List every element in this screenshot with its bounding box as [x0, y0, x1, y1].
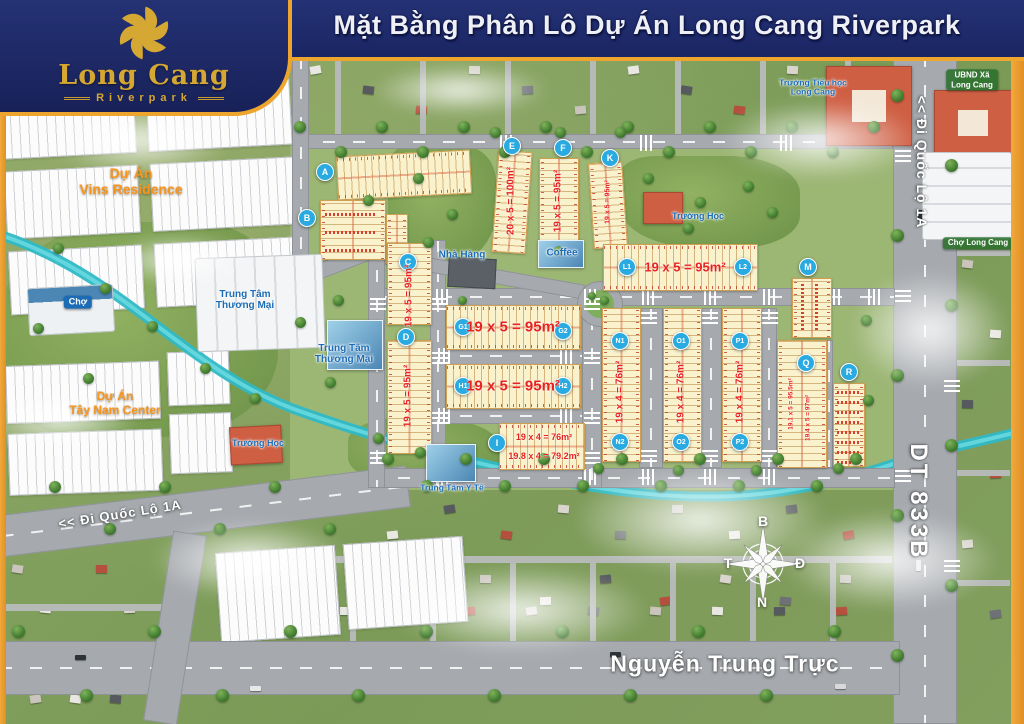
tree-icon — [745, 146, 757, 158]
crosswalk — [895, 290, 911, 302]
tree-icon — [593, 463, 604, 474]
logo-tagline: Riverpark — [64, 92, 224, 104]
tree-icon — [216, 689, 229, 702]
tree-icon — [692, 625, 705, 638]
tree-icon — [376, 121, 388, 133]
tree-icon — [415, 447, 426, 458]
tagline-rule — [64, 97, 90, 100]
compass-east: Đ — [795, 555, 805, 571]
tree-icon — [733, 480, 745, 492]
size-n: 19 x 4 = 76m² — [615, 361, 626, 424]
crosswalk — [704, 469, 716, 485]
label-line: Dự Án — [79, 165, 182, 181]
lot-block-a — [336, 150, 472, 201]
car — [916, 560, 921, 571]
courtyard — [852, 90, 886, 121]
tree-icon — [945, 299, 958, 312]
tree-icon — [868, 121, 880, 133]
crosswalk — [641, 312, 657, 324]
tree-icon — [694, 453, 706, 465]
road-label-dt-833b: DT 833B — [904, 443, 932, 560]
tree-icon — [413, 173, 424, 184]
tree-icon — [325, 377, 336, 388]
label-line: Tây Nam Center — [69, 404, 160, 418]
tree-icon — [53, 243, 64, 254]
tree-icon — [945, 439, 958, 452]
marker-p2: P2 — [731, 433, 749, 451]
crosswalk — [432, 412, 448, 424]
marker-o1: O1 — [672, 332, 690, 350]
tree-icon — [891, 89, 904, 102]
tree-icon — [811, 480, 823, 492]
crosswalk — [763, 289, 775, 305]
label-cho: Chợ — [64, 296, 92, 309]
label-truong-hoc-1: Trường Học — [672, 212, 724, 222]
tree-icon — [695, 197, 706, 208]
tree-icon — [490, 127, 501, 138]
tree-icon — [104, 523, 116, 535]
size-h: 19 x 5 = 95m² — [466, 378, 560, 395]
label-trung-tam-y-te: Trung Tâm Y Tế — [420, 483, 483, 492]
tree-icon — [655, 480, 667, 492]
crosswalk — [560, 348, 572, 364]
car — [835, 684, 846, 689]
crosswalk — [868, 289, 880, 305]
lot-block-m — [792, 278, 832, 338]
size-e: 20 x 5 = 100m² — [506, 167, 517, 235]
label-line: Long Cang — [779, 88, 847, 97]
car — [250, 686, 261, 691]
crosswalk — [944, 380, 960, 392]
size-p: 19 x 4 = 76m² — [735, 361, 746, 424]
marker-b: B — [298, 209, 316, 227]
tree-icon — [458, 296, 467, 305]
tiny-lot-text — [325, 213, 375, 216]
crosswalk — [641, 450, 657, 462]
tree-icon — [616, 453, 628, 465]
tree-icon — [891, 229, 904, 242]
marker-k: K — [601, 149, 619, 167]
marker-n1: N1 — [611, 332, 629, 350]
size-o: 19 x 4 = 76m² — [676, 361, 687, 424]
tree-icon — [200, 363, 211, 374]
courtyard — [958, 110, 988, 136]
tree-icon — [850, 453, 862, 465]
tree-icon — [335, 146, 347, 158]
tree-icon — [743, 181, 754, 192]
tree-icon — [499, 480, 511, 492]
tree-icon — [159, 481, 171, 493]
size-l: 19 x 5 = 95m² — [644, 260, 725, 275]
crosswalk — [895, 150, 911, 162]
marker-o2: O2 — [672, 433, 690, 451]
compass-north: B — [758, 513, 768, 529]
tree-icon — [49, 481, 61, 493]
crosswalk — [702, 312, 718, 324]
compass-south: N — [757, 594, 767, 610]
tree-icon — [827, 146, 839, 158]
tree-icon — [214, 523, 226, 535]
crosswalk — [584, 352, 600, 364]
logo-pinwheel-icon — [113, 2, 175, 64]
tiny-lot-text — [837, 391, 859, 394]
label-coffee: Coffee — [546, 248, 577, 259]
marker-f: F — [554, 139, 572, 157]
tree-icon — [294, 121, 306, 133]
tiny-lot-text — [801, 284, 804, 330]
tree-icon — [828, 625, 841, 638]
marker-m: M — [799, 258, 817, 276]
label-line: Dự Án — [69, 390, 160, 404]
label-line: UBND Xã — [951, 70, 993, 80]
label-cho-long-cang: Chợ Long Cang — [943, 237, 1013, 249]
tree-icon — [540, 121, 552, 133]
size-i2: 19.8 x 4 = 79.2m² — [508, 451, 579, 461]
crosswalk — [432, 352, 448, 364]
marker-l2: L2 — [734, 258, 752, 276]
crosswalk — [762, 312, 778, 324]
tree-icon — [891, 649, 904, 662]
logo-panel: Long Cang Riverpark — [0, 0, 292, 116]
label-nha-hang: Nhà Hàng — [439, 250, 486, 261]
tree-icon — [760, 689, 773, 702]
size-i1: 19 x 4 = 76m² — [516, 432, 572, 442]
tree-icon — [417, 146, 429, 158]
tree-icon — [581, 146, 593, 158]
label-line: Thương Mại — [216, 300, 274, 311]
tiny-lot-text — [837, 431, 859, 434]
crosswalk — [584, 412, 600, 424]
size-q2: 19.4 x 5 = 97m² — [805, 395, 812, 441]
tree-icon — [100, 283, 111, 294]
tree-icon — [80, 689, 93, 702]
road-label-quoc-lo-1a-right: << Đi Quốc Lộ 1A — [914, 96, 930, 229]
marker-d: D — [397, 328, 415, 346]
tree-icon — [624, 689, 637, 702]
crosswalk — [642, 469, 654, 485]
tiny-lot-text — [837, 411, 859, 414]
size-d: 19 x 5 = 95m² — [403, 365, 414, 428]
marker-q: Q — [797, 354, 815, 372]
crosswalk — [642, 289, 654, 305]
tree-icon — [12, 625, 25, 638]
tree-icon — [148, 625, 161, 638]
tree-icon — [33, 323, 44, 334]
tree-icon — [295, 317, 306, 328]
tree-icon — [861, 315, 872, 326]
tree-icon — [556, 625, 569, 638]
tree-icon — [767, 207, 778, 218]
label-line: Trung Tâm — [315, 343, 373, 354]
marker-p1: P1 — [731, 332, 749, 350]
label-truong-hoc-2: Trường Học — [232, 439, 284, 449]
size-g: 19 x 5 = 95m² — [466, 319, 560, 336]
road-v-pq — [760, 308, 777, 468]
tree-icon — [423, 237, 434, 248]
car — [75, 655, 86, 660]
label-line: Trung Tâm — [216, 289, 274, 300]
tree-icon — [588, 292, 596, 300]
tree-icon — [373, 433, 384, 444]
crosswalk — [704, 289, 716, 305]
marker-e: E — [503, 137, 521, 155]
size-q1: 19.1 x 5 = 95.5m² — [788, 378, 795, 430]
frame-left — [0, 112, 6, 724]
marker-r: R — [840, 363, 858, 381]
tree-icon — [673, 465, 684, 476]
label-vins-residence: Dự Án Vins Residence — [79, 165, 182, 197]
tree-icon — [663, 146, 675, 158]
cho-long-cang-building — [922, 152, 1012, 240]
tree-icon — [352, 689, 365, 702]
tree-icon — [833, 463, 844, 474]
tree-icon — [577, 480, 589, 492]
label-line: Long Cang — [951, 80, 993, 90]
crosswalk — [780, 135, 792, 151]
label-truong-tieu-hoc: Trường Tiểu học Long Cang — [779, 79, 847, 98]
road-label-nguyen-trung-truc: Nguyễn Trung Trực — [610, 651, 839, 678]
tiny-lot-text — [837, 421, 859, 424]
tree-icon — [458, 121, 470, 133]
logo-name: Long Cang — [58, 62, 229, 89]
tree-icon — [751, 465, 762, 476]
size-k: 19 x 5 = 95m² — [605, 180, 612, 224]
label-line: Vins Residence — [79, 181, 182, 197]
tree-icon — [945, 579, 958, 592]
marker-a: A — [316, 163, 334, 181]
tree-icon — [555, 127, 566, 138]
crosswalk — [560, 408, 572, 424]
label-ttm2: Trung Tâm Thương Mại — [315, 343, 373, 365]
tiny-lot-text — [325, 249, 375, 252]
long-cang-riverpark-masterplan: A B C D E F K G1 G2 H1 H2 I L1 L2 M N1 N… — [0, 0, 1024, 724]
label-ubnd: UBND Xã Long Cang — [946, 69, 998, 90]
marker-i: I — [488, 434, 506, 452]
tree-icon — [945, 159, 958, 172]
tree-icon — [460, 453, 472, 465]
tiny-lot-text — [837, 401, 859, 404]
road-v-op — [700, 308, 722, 468]
road-hi — [430, 407, 603, 424]
tiny-lot-text — [325, 231, 375, 234]
tree-icon — [772, 453, 784, 465]
tree-icon — [447, 209, 458, 220]
crosswalk — [370, 298, 386, 310]
nha-hang-building — [447, 257, 497, 289]
marker-l1: L1 — [618, 258, 636, 276]
ubnd-building — [934, 90, 1012, 156]
compass-west: T — [724, 555, 733, 571]
tree-icon — [683, 223, 694, 234]
crosswalk — [640, 135, 652, 151]
tree-icon — [250, 393, 261, 404]
tree-icon — [420, 625, 433, 638]
tree-icon — [147, 321, 158, 332]
tiny-lot-text — [837, 441, 859, 444]
frame-right — [1011, 57, 1024, 724]
label-line: Thương Mại — [315, 354, 373, 365]
road-north-boundary — [293, 134, 893, 149]
tree-icon — [324, 523, 336, 535]
tree-icon — [284, 625, 297, 638]
label-tay-nam-center: Dự Án Tây Nam Center — [69, 390, 160, 418]
tagline-rule — [198, 97, 224, 100]
tree-icon — [615, 127, 626, 138]
tree-icon — [488, 689, 501, 702]
tree-icon — [863, 395, 874, 406]
crosswalk — [944, 560, 960, 572]
tree-icon — [891, 509, 904, 522]
tree-icon — [83, 373, 94, 384]
size-f: 19 x 5 = 95m² — [553, 170, 564, 233]
page-title: Mặt Bằng Phân Lô Dự Án Long Cang Riverpa… — [290, 10, 1004, 41]
tree-icon — [786, 121, 798, 133]
tree-icon — [382, 453, 394, 465]
label-ttm1: Trung Tâm Thương Mại — [216, 289, 274, 311]
tree-icon — [363, 195, 374, 206]
marker-n2: N2 — [611, 433, 629, 451]
tree-icon — [891, 369, 904, 382]
size-c: 19 x 5 = 95m² — [404, 265, 415, 328]
tagline-text: Riverpark — [96, 92, 192, 104]
road-v-no — [639, 308, 663, 468]
tree-icon — [600, 296, 609, 305]
tree-icon — [704, 121, 716, 133]
crosswalk — [763, 469, 775, 485]
tree-icon — [269, 481, 281, 493]
tiny-lot-text — [815, 284, 818, 330]
tree-icon — [643, 173, 654, 184]
tree-icon — [333, 295, 344, 306]
